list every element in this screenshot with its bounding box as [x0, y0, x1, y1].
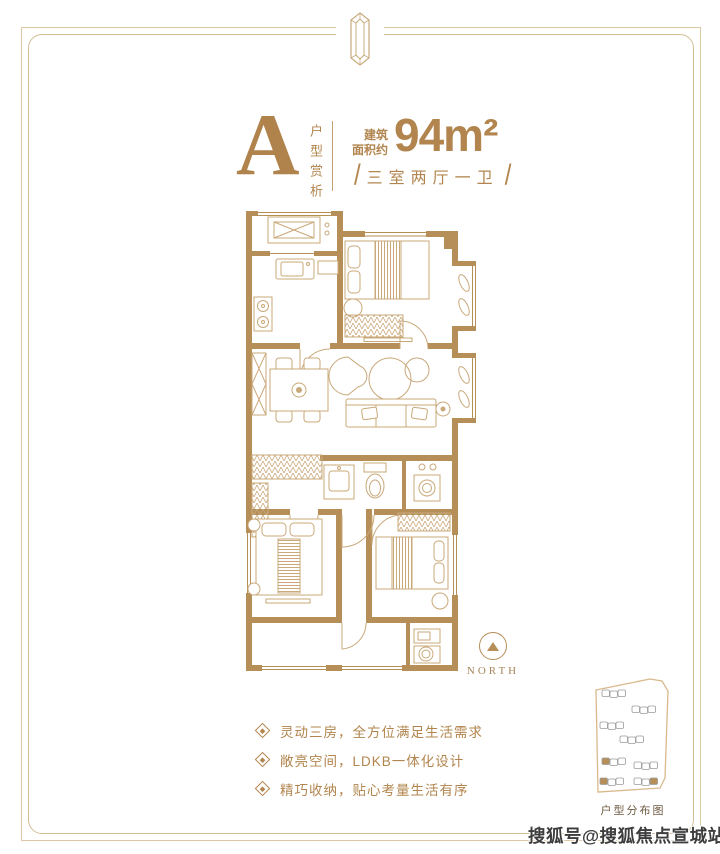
compass: NORTH — [462, 632, 524, 677]
sofa-icon — [346, 399, 436, 427]
area-label: 建筑 面积约 — [352, 128, 388, 158]
dining-table-icon — [270, 358, 328, 422]
area-row: 建筑 面积约 94m² — [352, 112, 497, 158]
flyer-page: A 户型赏析 建筑 面积约 94m² / 三室两厅一卫 / — [0, 0, 720, 854]
slash-left: / — [352, 159, 363, 193]
building-icon — [620, 736, 644, 744]
compass-circle-icon — [479, 632, 507, 660]
bedside-stool-icon — [344, 299, 362, 317]
diamond-bullet-icon — [255, 752, 271, 768]
header-divider — [332, 121, 333, 191]
feature-text: 精巧收纳，贴心考量生活有序 — [280, 779, 469, 799]
floor-plan — [230, 203, 480, 683]
building-icon — [632, 706, 656, 714]
bay-plant-icon — [457, 273, 472, 409]
nightstand-icon — [248, 519, 260, 531]
site-buildings — [600, 690, 658, 786]
toilet-icon — [364, 463, 386, 498]
area-label-line2: 面积约 — [352, 143, 388, 158]
area-label-line1: 建筑 — [352, 128, 388, 143]
side-table-center — [441, 407, 445, 411]
furniture — [248, 217, 471, 663]
armchair-icon — [329, 357, 367, 395]
building-icon — [602, 690, 626, 698]
slash-right: / — [503, 159, 514, 193]
layout-spec-row: / 三室两厅一卫 / — [352, 162, 513, 190]
sitemap-caption: 户型分布图 — [585, 802, 681, 818]
utility-fixtures-icon — [414, 464, 440, 501]
bedroom2-door-arc — [400, 321, 428, 349]
laundry-unit-icon — [414, 629, 440, 663]
bedside-stool-icon — [432, 593, 448, 609]
feature-text: 灵动三房，全方位满足生活需求 — [280, 721, 483, 741]
building-icon — [600, 722, 624, 730]
kitchen-sink-icon — [276, 259, 314, 279]
bathroom-sink-icon — [324, 465, 354, 499]
rug-icon — [369, 358, 411, 400]
feature-item: 灵动三房，全方位满足生活需求 — [257, 716, 483, 745]
gem-ornament-icon — [346, 11, 374, 67]
shoe-cabinet-icon — [252, 455, 322, 479]
drying-rack-icon — [268, 217, 329, 243]
diamond-bullet-icon — [255, 781, 271, 797]
tv-console-icon — [364, 338, 412, 342]
compass-label: NORTH — [462, 665, 524, 677]
layout-spec: 三室两厅一卫 — [363, 164, 503, 188]
feature-item: 精巧收纳，贴心考量生活有序 — [257, 774, 483, 803]
feature-list: 灵动三房，全方位满足生活需求 敞亮空间，LDKB一体化设计 精巧收纳，贴心考量生… — [257, 716, 483, 803]
building-icon — [602, 758, 626, 766]
bedroom2-bed-icon — [345, 241, 429, 299]
feature-item: 敞亮空间，LDKB一体化设计 — [257, 745, 483, 774]
balcony-door-arc — [342, 623, 366, 649]
feature-text: 敞亮空间，LDKB一体化设计 — [280, 750, 464, 770]
unit-letter: A — [236, 102, 300, 190]
wardrobe-icon — [345, 315, 403, 337]
building-icon — [634, 778, 658, 786]
building-icon — [634, 762, 658, 770]
area-value: 94m² — [394, 112, 497, 158]
building-icon — [600, 778, 624, 786]
kitchen-cabinet-icon — [318, 261, 338, 274]
site-map — [590, 674, 675, 799]
wardrobe-icon — [398, 513, 450, 531]
nightstand-icon — [248, 583, 260, 595]
stove-icon — [254, 297, 272, 331]
master-bed-icon — [256, 519, 322, 603]
watermark: 搜狐号@搜狐焦点宣城站 — [528, 823, 720, 848]
diamond-bullet-icon — [255, 723, 271, 739]
dining-cabinet-icon — [252, 353, 266, 415]
north-arrow-icon — [487, 642, 499, 651]
unit-caption: 户型赏析 — [306, 124, 325, 204]
bedroom3-bed-icon — [376, 537, 448, 589]
